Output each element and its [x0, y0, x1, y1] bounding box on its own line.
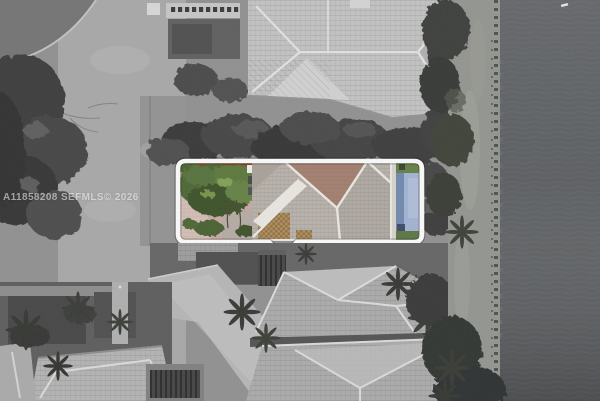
aerial-photo: A11858208 SEFMLS© 2026	[0, 0, 600, 401]
aerial-scene	[0, 0, 600, 401]
film-grain	[0, 0, 600, 401]
